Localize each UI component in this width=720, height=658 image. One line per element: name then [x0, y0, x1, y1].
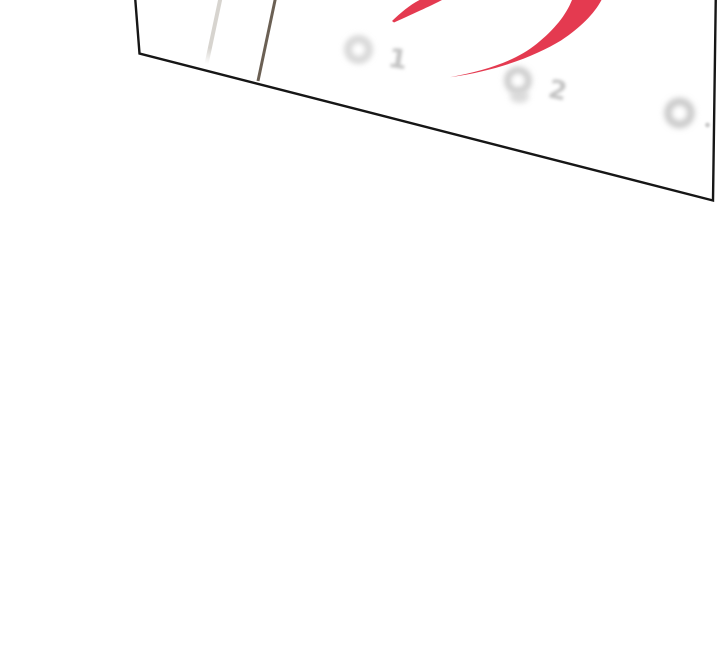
webtoon-panel: 1 2	[0, 0, 720, 658]
blurred-date-icon-lower-blob	[510, 90, 529, 103]
calendar-page	[135, 0, 716, 201]
comic-panel-canvas: 1 2	[0, 0, 720, 658]
blurred-speck	[705, 123, 710, 128]
